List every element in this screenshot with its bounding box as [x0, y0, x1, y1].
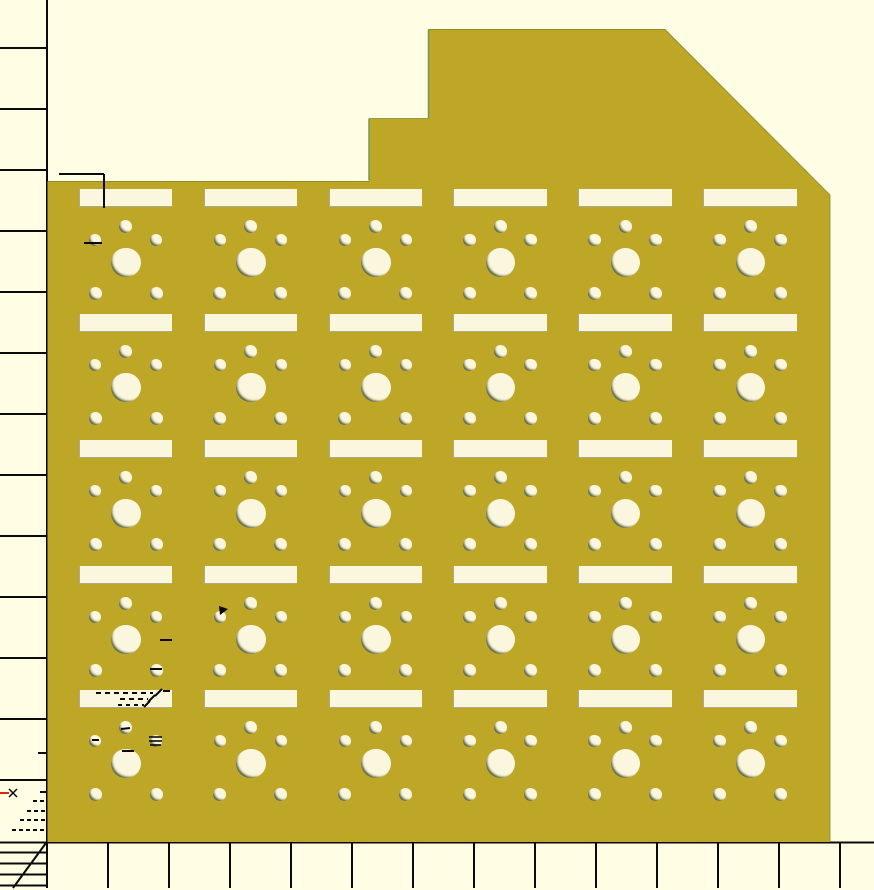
annotation-mark [121, 728, 130, 729]
annotation-mark [144, 701, 150, 707]
annotation-layer [0, 0, 874, 890]
cad-viewport[interactable] [0, 0, 874, 890]
plate-edge-highlight [48, 30, 831, 842]
annotation-triangle-mark [219, 606, 228, 615]
annotation-mark [155, 689, 162, 696]
